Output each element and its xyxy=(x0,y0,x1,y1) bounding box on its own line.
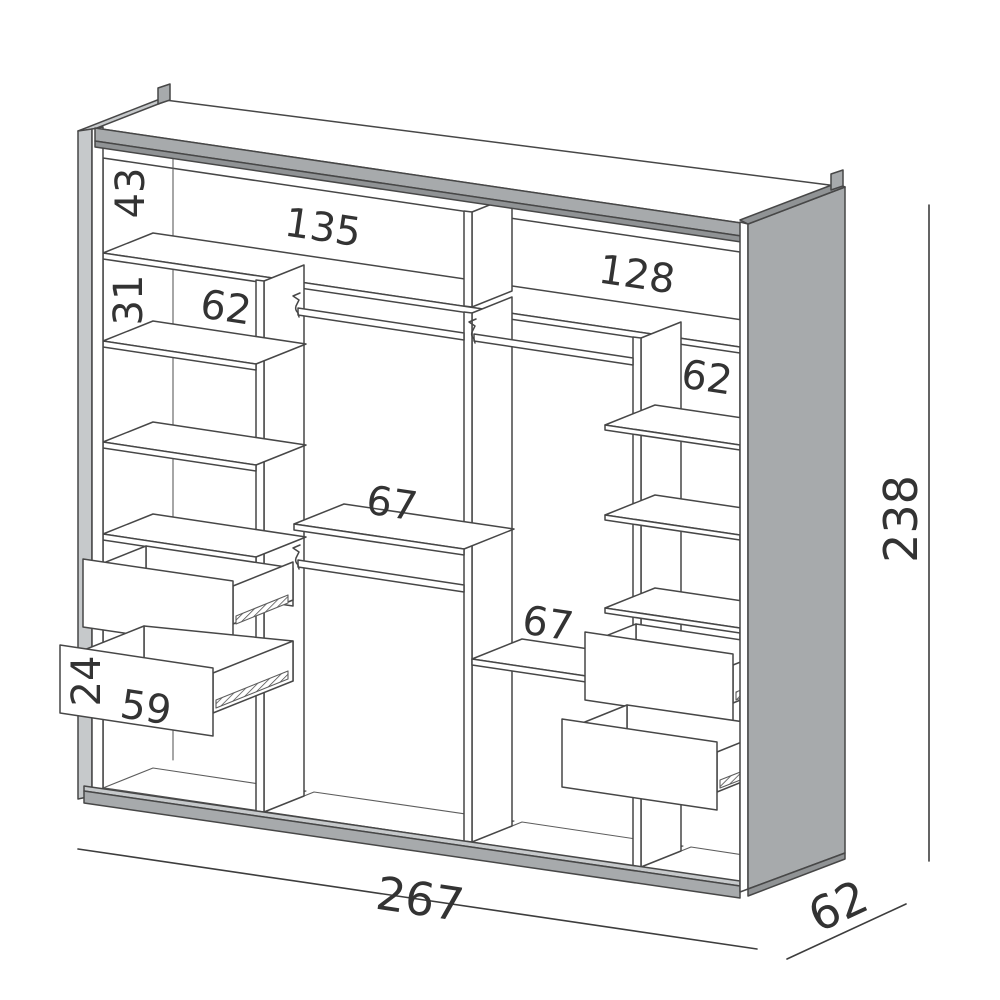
dim-label-drawer-front-height: 24 xyxy=(64,656,110,707)
wardrobe-technical-drawing: 43 135 128 31 62 62 67 67 24 59 267 62 2… xyxy=(0,0,1000,1000)
divider-b-side-face xyxy=(472,297,512,842)
back-panel-top-left-lip xyxy=(158,84,170,104)
right-panel-front-edge xyxy=(740,222,748,892)
top-divider-side-face xyxy=(472,196,512,307)
dim-label-overall-depth: 62 xyxy=(800,869,876,943)
top-divider-front-edge xyxy=(464,211,472,307)
dim-label-overall-width: 267 xyxy=(373,866,468,932)
dim-label-left-shelf-spacing: 31 xyxy=(106,275,152,326)
dim-label-right-shelf-width: 62 xyxy=(678,351,735,404)
divider-b-front-edge xyxy=(464,312,472,842)
dim-label-drawer-front-width: 59 xyxy=(117,681,174,734)
right-side-panel xyxy=(748,187,845,889)
dim-label-overall-height: 238 xyxy=(874,475,928,563)
dim-label-top-compartment-height: 43 xyxy=(108,168,154,219)
wardrobe-dimension-diagram: 43 135 128 31 62 62 67 67 24 59 267 62 2… xyxy=(0,0,1000,1000)
dim-label-left-shelf-width: 62 xyxy=(197,281,254,334)
dim-label-right-hanging-section-width: 67 xyxy=(519,597,576,650)
back-panel-top-right-lip xyxy=(831,170,843,190)
dim-label-left-hanging-section-width: 67 xyxy=(363,477,420,530)
